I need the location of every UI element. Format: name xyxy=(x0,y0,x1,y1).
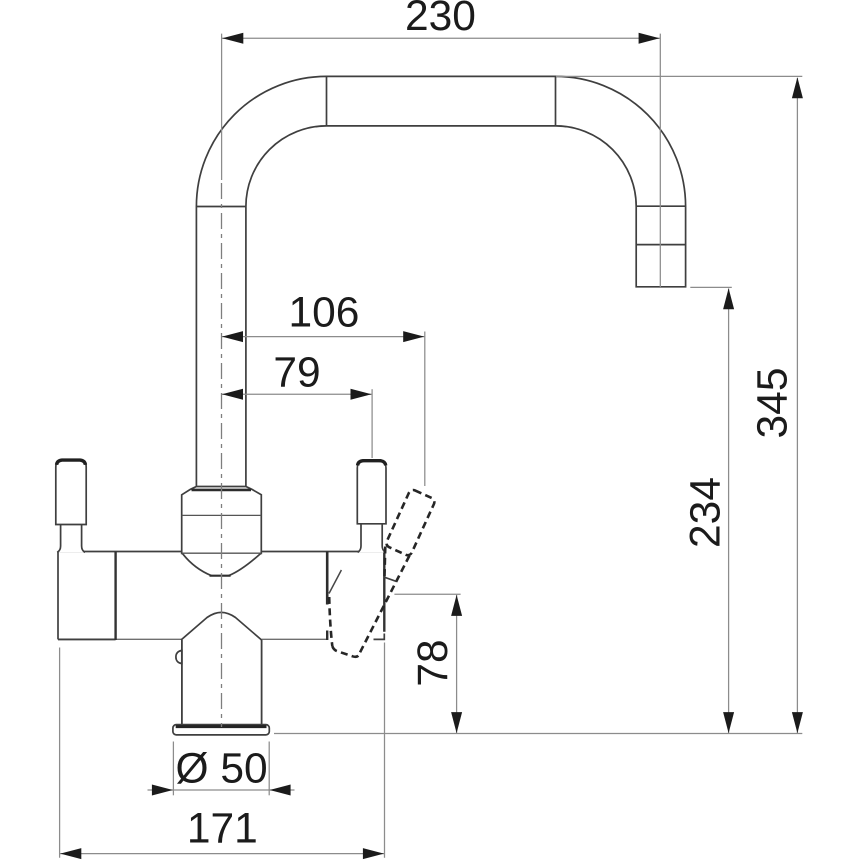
svg-text:106: 106 xyxy=(289,290,360,337)
svg-text:Ø 50: Ø 50 xyxy=(176,746,268,793)
svg-text:78: 78 xyxy=(410,639,457,686)
svg-text:171: 171 xyxy=(187,806,258,853)
svg-text:234: 234 xyxy=(683,477,730,548)
svg-text:230: 230 xyxy=(405,0,476,40)
svg-text:345: 345 xyxy=(750,368,797,439)
svg-text:79: 79 xyxy=(273,350,320,397)
